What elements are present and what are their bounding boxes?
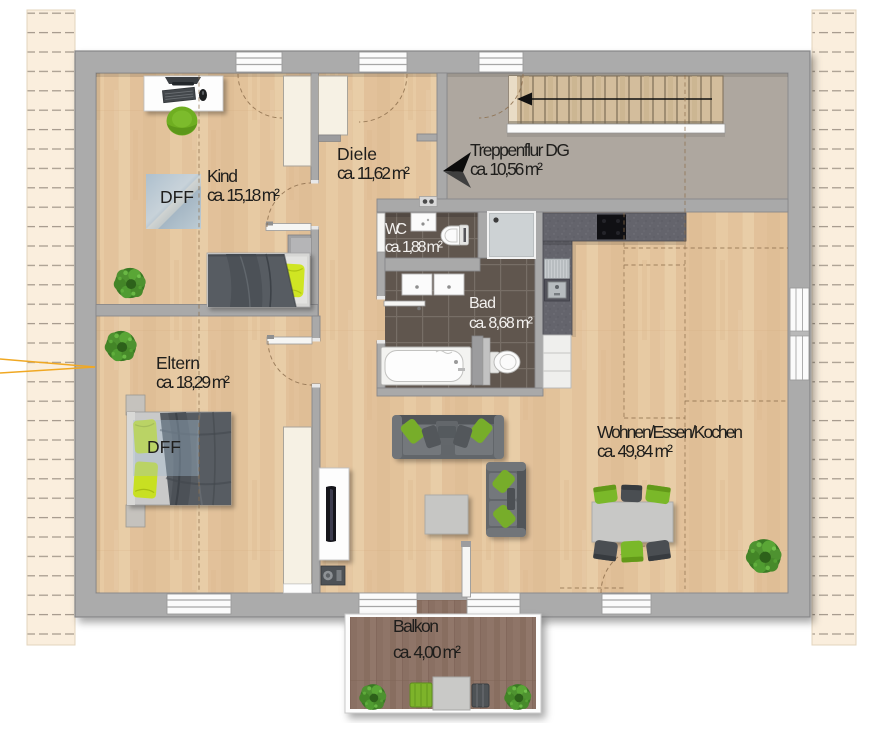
svg-text:ca. 1,88 m²: ca. 1,88 m² (385, 239, 444, 256)
svg-text:ca. 4,00 m²: ca. 4,00 m² (393, 642, 461, 662)
svg-text:Eltern: Eltern (156, 353, 200, 373)
svg-text:ca. 15,18 m²: ca. 15,18 m² (207, 185, 280, 205)
svg-text:Wohnen/Essen/Kochen: Wohnen/Essen/Kochen (597, 422, 743, 442)
svg-text:Kind: Kind (207, 166, 238, 186)
svg-text:ca. 8,68 m²: ca. 8,68 m² (469, 315, 534, 332)
svg-text:DFF: DFF (147, 437, 181, 457)
svg-text:WC: WC (385, 221, 407, 238)
svg-text:Diele: Diele (337, 144, 377, 164)
svg-text:ca. 11,62 m²: ca. 11,62 m² (337, 163, 410, 183)
svg-text:Bad: Bad (469, 295, 496, 312)
svg-text:ca. 18,29 m²: ca. 18,29 m² (156, 372, 230, 392)
svg-text:Treppenflur DG: Treppenflur DG (470, 140, 570, 160)
svg-text:Balkon: Balkon (393, 616, 439, 636)
svg-text:ca. 49,84 m²: ca. 49,84 m² (597, 441, 673, 461)
svg-text:DFF: DFF (160, 187, 194, 207)
svg-text:ca. 10,56 m²: ca. 10,56 m² (470, 159, 543, 179)
